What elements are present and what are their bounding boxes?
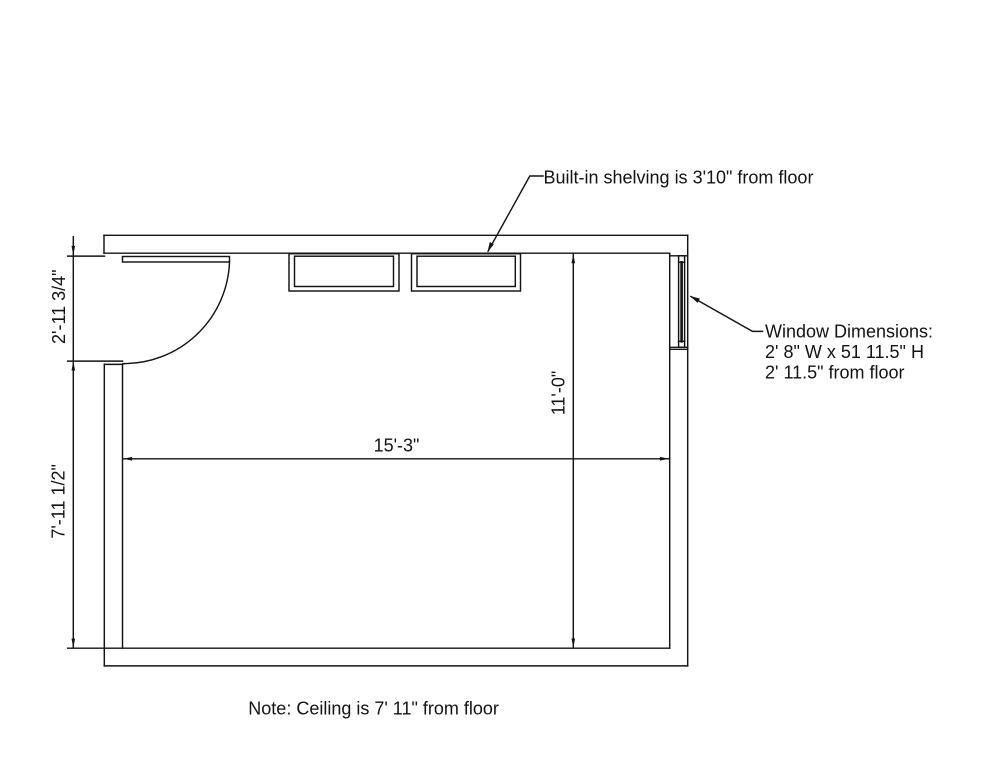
- svg-text:11'-0": 11'-0": [548, 371, 568, 416]
- svg-text:Window Dimensions:: Window Dimensions:: [765, 322, 933, 342]
- svg-text:Built-in shelving is 3'10" fro: Built-in shelving is 3'10" from floor: [544, 167, 814, 187]
- svg-text:2' 8" W x 51 11.5" H: 2' 8" W x 51 11.5" H: [765, 342, 924, 362]
- svg-text:Note: Ceiling is 7' 11" from f: Note: Ceiling is 7' 11" from floor: [248, 699, 499, 719]
- svg-text:7'-11 1/2": 7'-11 1/2": [49, 464, 69, 539]
- svg-text:2' 11.5" from floor: 2' 11.5" from floor: [765, 363, 905, 383]
- svg-text:2'-11 3/4": 2'-11 3/4": [49, 269, 69, 344]
- svg-text:15'-3": 15'-3": [374, 435, 420, 455]
